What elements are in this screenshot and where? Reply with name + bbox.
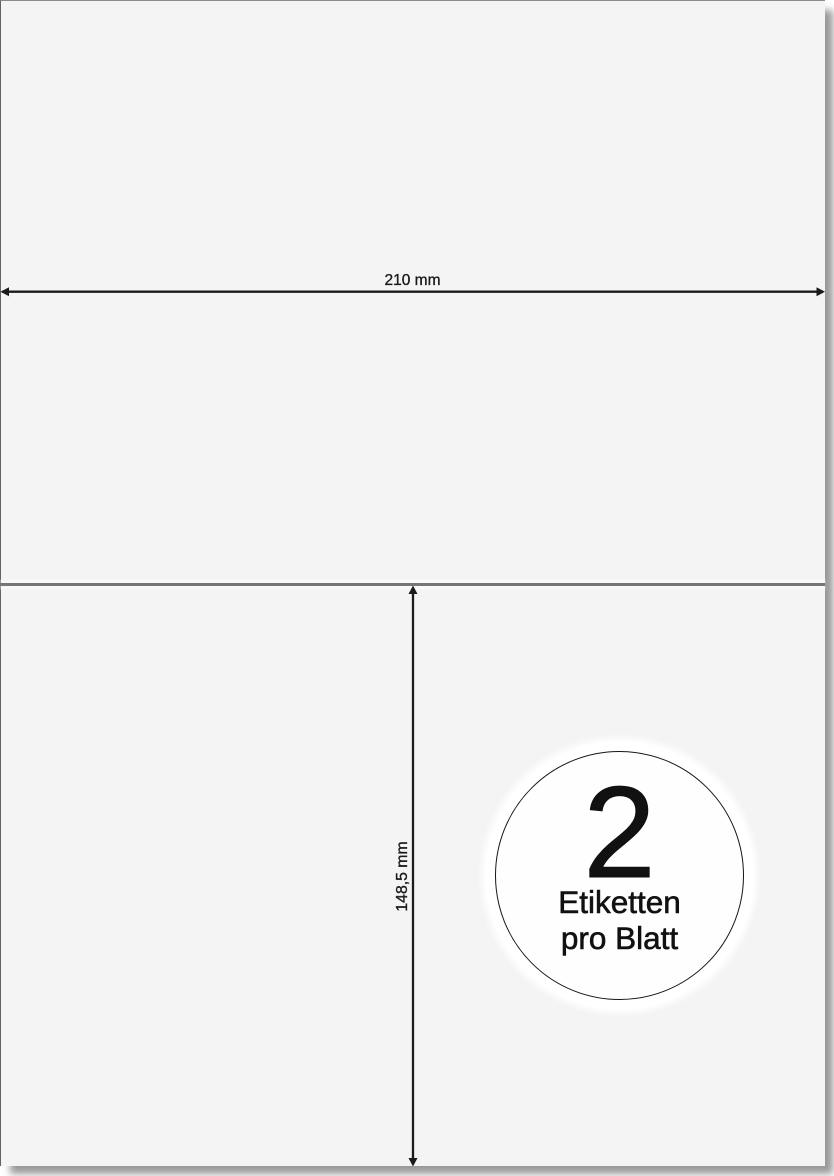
svg-text:148,5 mm: 148,5 mm <box>394 841 411 911</box>
svg-text:Etiketten: Etiketten <box>558 884 681 920</box>
svg-text:pro Blatt: pro Blatt <box>561 920 679 956</box>
svg-text:210 mm: 210 mm <box>385 272 441 289</box>
